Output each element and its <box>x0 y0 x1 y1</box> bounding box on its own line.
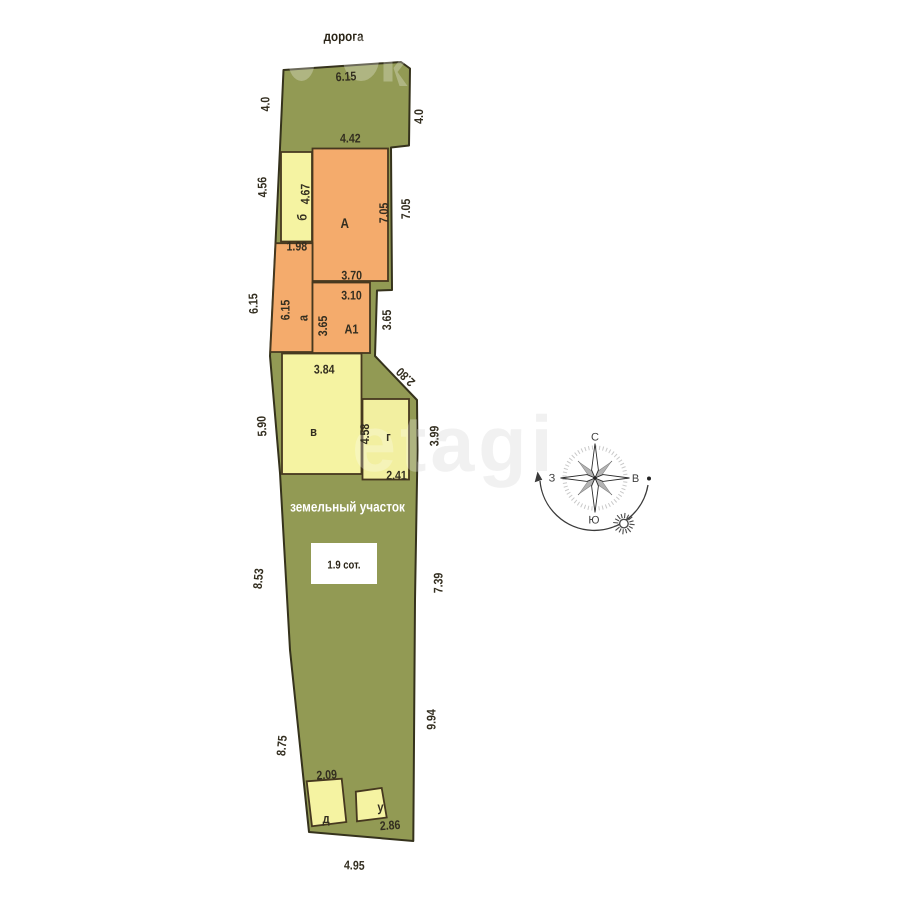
svg-text:Ю: Ю <box>588 514 599 526</box>
svg-text:А: А <box>341 215 350 231</box>
svg-text:4.67: 4.67 <box>299 184 313 205</box>
svg-text:3.65: 3.65 <box>316 316 330 337</box>
svg-text:4.56: 4.56 <box>255 177 270 198</box>
svg-text:7.39: 7.39 <box>432 573 446 594</box>
svg-text:2.41: 2.41 <box>386 469 407 483</box>
svg-text:7.05: 7.05 <box>377 203 391 224</box>
svg-text:у: у <box>377 800 384 815</box>
svg-text:а: а <box>296 314 311 321</box>
svg-text:4.58: 4.58 <box>358 424 372 445</box>
svg-text:4.0: 4.0 <box>412 109 426 124</box>
svg-text:земельный участок: земельный участок <box>290 499 406 515</box>
svg-text:4.95: 4.95 <box>344 858 365 873</box>
svg-text:В: В <box>632 473 639 485</box>
svg-text:1.98: 1.98 <box>287 240 308 254</box>
svg-text:1.9 сот.: 1.9 сот. <box>327 560 360 572</box>
svg-text:2.09: 2.09 <box>316 767 338 782</box>
svg-text:3.99: 3.99 <box>428 426 442 447</box>
svg-text:6.15: 6.15 <box>335 69 356 84</box>
svg-text:9.94: 9.94 <box>425 709 439 730</box>
svg-text:А1: А1 <box>345 322 359 337</box>
svg-text:С: С <box>591 431 599 443</box>
svg-text:2.86: 2.86 <box>379 818 401 833</box>
svg-text:4.42: 4.42 <box>340 131 361 145</box>
svg-text:3.84: 3.84 <box>314 363 335 377</box>
svg-text:3.70: 3.70 <box>341 269 362 283</box>
svg-text:6.15: 6.15 <box>279 300 293 321</box>
svg-text:5.90: 5.90 <box>254 416 269 437</box>
svg-text:З: З <box>549 472 556 484</box>
svg-text:б: б <box>295 214 310 221</box>
svg-text:6.15: 6.15 <box>246 293 261 314</box>
svg-text:д: д <box>323 811 331 826</box>
svg-text:etagi: etagi <box>352 399 557 488</box>
svg-text:8.75: 8.75 <box>274 735 290 757</box>
svg-text:в: в <box>310 424 317 439</box>
svg-text:7.05: 7.05 <box>399 199 413 220</box>
svg-text:г: г <box>386 429 391 444</box>
svg-text:4.0: 4.0 <box>258 97 273 112</box>
svg-text:3.65: 3.65 <box>380 310 394 331</box>
svg-text:3.10: 3.10 <box>341 289 362 303</box>
svg-text:8.53: 8.53 <box>251 568 267 590</box>
